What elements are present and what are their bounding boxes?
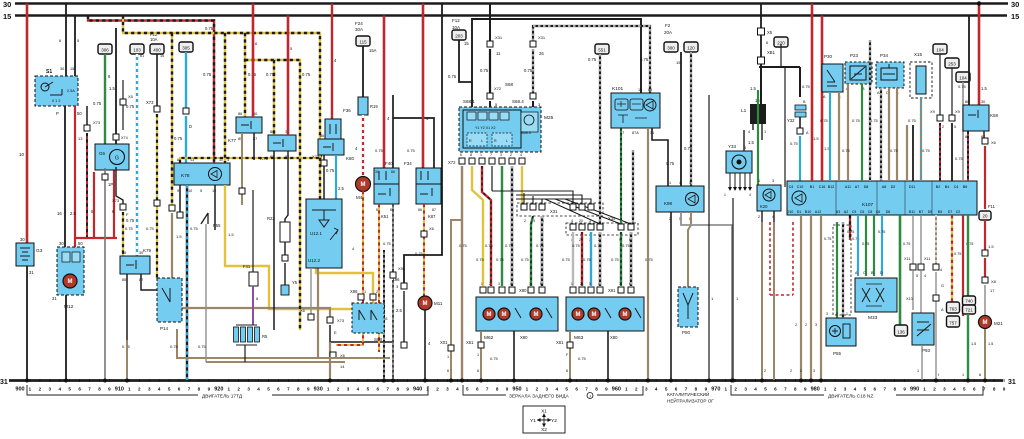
svg-text:B12: B12 (828, 185, 834, 189)
svg-text:3: 3 (589, 282, 591, 286)
svg-text:B4: B4 (945, 185, 949, 189)
svg-text:900: 900 (15, 387, 24, 393)
svg-text:R: R (494, 139, 497, 143)
svg-text:9: 9 (108, 387, 111, 392)
svg-text:0.75: 0.75 (383, 241, 392, 246)
svg-text:C8: C8 (868, 210, 873, 214)
svg-text:3: 3 (689, 181, 691, 185)
svg-text:4: 4 (571, 219, 573, 223)
svg-text:0.75: 0.75 (476, 257, 485, 262)
svg-text:10A: 10A (452, 25, 460, 30)
svg-text:0.75: 0.75 (640, 57, 649, 62)
svg-text:6: 6 (874, 387, 877, 392)
svg-text:87A: 87A (632, 131, 639, 135)
svg-text:7: 7 (529, 282, 531, 286)
svg-text:0 1 2: 0 1 2 (52, 99, 60, 103)
svg-text:9: 9 (804, 387, 807, 392)
svg-text:P23: P23 (850, 53, 859, 58)
svg-text:3: 3 (49, 387, 52, 392)
svg-text:4: 4 (854, 387, 857, 392)
svg-text:X31: X31 (495, 35, 503, 40)
svg-text:2: 2 (805, 323, 807, 327)
svg-text:1: 1 (447, 355, 449, 359)
svg-text:A8: A8 (882, 185, 886, 189)
svg-text:17: 17 (990, 288, 995, 293)
svg-text:K98: K98 (664, 201, 673, 206)
svg-text:740: 740 (965, 299, 973, 304)
svg-text:5: 5 (200, 189, 202, 193)
svg-text:B10: B10 (805, 210, 811, 214)
svg-text:J: J (589, 394, 591, 399)
svg-text:2: 2 (138, 387, 141, 392)
svg-text:0.75: 0.75 (583, 257, 592, 262)
svg-text:B7: B7 (919, 210, 923, 214)
svg-text:87: 87 (432, 208, 436, 212)
svg-text:31: 31 (1008, 379, 1016, 386)
svg-text:X13: X13 (906, 297, 913, 301)
svg-text:2: 2 (580, 282, 582, 286)
svg-text:B2: B2 (936, 185, 940, 189)
svg-text:31: 31 (52, 296, 57, 301)
svg-text:X8: X8 (991, 279, 997, 284)
svg-text:1: 1 (669, 181, 671, 185)
svg-text:G3: G3 (36, 248, 43, 254)
svg-text:X11: X11 (904, 257, 910, 261)
svg-text:U12.2: U12.2 (308, 258, 321, 263)
svg-text:757: 757 (949, 321, 957, 326)
svg-text:S1: S1 (46, 69, 52, 75)
svg-text:R: R (469, 139, 472, 143)
svg-text:6: 6 (566, 369, 568, 373)
svg-text:13: 13 (78, 136, 83, 141)
svg-text:A2: A2 (844, 210, 848, 214)
svg-text:1.5: 1.5 (109, 86, 115, 91)
svg-text:M62: M62 (484, 335, 494, 341)
svg-text:30: 30 (3, 0, 11, 9)
svg-text:K87: K87 (428, 214, 436, 219)
svg-text:X01: X01 (440, 340, 448, 345)
svg-text:13: 13 (190, 158, 194, 162)
svg-text:X9: X9 (930, 109, 936, 114)
svg-text:ЗЕРКАЛА ЗАДНЕГО ВИДА: ЗЕРКАЛА ЗАДНЕГО ВИДА (509, 394, 570, 400)
svg-text:D6: D6 (886, 210, 891, 214)
svg-text:0.75: 0.75 (496, 257, 505, 262)
svg-text:0.75: 0.75 (407, 148, 416, 153)
svg-text:61: 61 (140, 54, 144, 58)
svg-text:C16: C16 (819, 185, 826, 189)
svg-text:B11: B11 (909, 210, 915, 214)
svg-text:1: 1 (962, 373, 964, 377)
svg-text:950: 950 (512, 387, 521, 393)
svg-text:1.5: 1.5 (988, 342, 993, 346)
svg-text:P14: P14 (160, 326, 169, 331)
svg-text:4: 4 (749, 193, 751, 197)
svg-text:4: 4 (257, 387, 260, 392)
svg-text:Y1 Y2 X1 X2: Y1 Y2 X1 X2 (475, 126, 496, 130)
svg-text:5: 5 (367, 387, 370, 392)
svg-text:0.75: 0.75 (126, 104, 135, 109)
svg-text:0.75: 0.75 (862, 242, 869, 246)
svg-text:120: 120 (687, 46, 695, 51)
svg-text:F2: F2 (665, 23, 671, 28)
svg-text:8: 8 (496, 387, 499, 392)
svg-text:5: 5 (864, 387, 867, 392)
svg-text:763: 763 (949, 307, 957, 312)
svg-text:G: G (115, 156, 119, 162)
svg-text:X72: X72 (494, 86, 502, 91)
svg-text:551: 551 (598, 48, 606, 53)
svg-text:M: M (68, 279, 73, 285)
svg-text:2: 2 (758, 215, 760, 219)
svg-text:5: 5 (954, 125, 956, 129)
svg-text:86: 86 (965, 100, 969, 104)
svg-text:2.5: 2.5 (338, 186, 344, 191)
svg-text:0.75: 0.75 (93, 101, 102, 106)
svg-text:1: 1 (724, 387, 727, 392)
svg-text:1.5: 1.5 (748, 140, 754, 145)
svg-text:4: 4 (940, 268, 942, 272)
svg-text:6: 6 (178, 387, 181, 392)
svg-text:F24: F24 (355, 21, 363, 26)
svg-text:2: 2 (376, 290, 378, 294)
svg-text:0.75: 0.75 (521, 257, 530, 262)
svg-text:1: 1 (481, 282, 483, 286)
svg-text:0.75: 0.75 (459, 243, 468, 248)
svg-text:0.75: 0.75 (266, 72, 275, 77)
svg-text:721: 721 (965, 308, 973, 313)
svg-text:F11: F11 (988, 204, 996, 209)
svg-text:6: 6 (377, 387, 380, 392)
svg-text:M: M (423, 301, 428, 307)
svg-text:M: M (983, 320, 988, 326)
svg-text:0.75: 0.75 (922, 148, 931, 153)
svg-text:НЕЙТРАЛИЗАТОР ОГ: НЕЙТРАЛИЗАТОР ОГ (667, 397, 714, 404)
svg-text:3: 3 (498, 282, 500, 286)
svg-text:X34: X34 (608, 216, 616, 221)
svg-text:P34: P34 (880, 53, 889, 58)
svg-text:1.5: 1.5 (981, 86, 987, 91)
svg-text:9: 9 (1003, 387, 1006, 392)
svg-text:X2: X2 (541, 427, 547, 433)
svg-text:86: 86 (418, 208, 422, 212)
svg-text:10A: 10A (150, 37, 158, 42)
svg-text:15: 15 (638, 88, 642, 92)
svg-text:B1: B1 (810, 185, 814, 189)
svg-text:0.75: 0.75 (203, 72, 212, 77)
svg-text:0.75: 0.75 (684, 146, 693, 151)
svg-text:0.75: 0.75 (375, 148, 384, 153)
svg-text:1: 1 (571, 282, 573, 286)
svg-text:7: 7 (883, 387, 886, 392)
svg-text:2: 2 (510, 153, 512, 157)
svg-text:0.75: 0.75 (485, 243, 494, 248)
svg-text:6: 6 (774, 387, 777, 392)
svg-text:1.5: 1.5 (971, 342, 976, 346)
svg-text:1: 1 (764, 130, 766, 134)
svg-text:0.75: 0.75 (302, 72, 311, 77)
svg-text:2: 2 (764, 369, 766, 373)
svg-text:4: 4 (456, 387, 459, 392)
svg-text:X11: X11 (924, 257, 930, 261)
svg-text:0.75: 0.75 (480, 68, 489, 73)
svg-text:K58: K58 (990, 113, 999, 118)
svg-text:X80: X80 (520, 335, 528, 340)
svg-text:9: 9 (406, 387, 409, 392)
svg-text:970: 970 (711, 387, 720, 393)
svg-text:15A: 15A (369, 48, 377, 53)
svg-text:X73: X73 (112, 198, 120, 203)
svg-text:A7: A7 (855, 185, 859, 189)
svg-text:M: M (502, 312, 507, 318)
svg-text:0.75: 0.75 (536, 243, 545, 248)
svg-text:P50: P50 (682, 330, 691, 335)
svg-text:203: 203 (455, 34, 463, 39)
svg-text:8: 8 (993, 387, 996, 392)
svg-text:X31: X31 (538, 35, 546, 40)
svg-text:9: 9 (705, 387, 708, 392)
svg-text:8: 8 (98, 387, 101, 392)
svg-text:0.75: 0.75 (958, 84, 967, 89)
svg-text:14: 14 (340, 364, 345, 369)
svg-text:3: 3 (813, 369, 815, 373)
svg-text:0.75: 0.75 (645, 257, 654, 262)
svg-text:15: 15 (3, 12, 11, 21)
svg-text:4: 4 (158, 387, 161, 392)
svg-text:3: 3 (148, 387, 151, 392)
svg-text:6: 6 (629, 282, 631, 286)
svg-text:1: 1 (923, 387, 926, 392)
svg-text:3: 3 (744, 387, 747, 392)
svg-text:0.75: 0.75 (622, 243, 631, 248)
svg-text:960: 960 (612, 387, 621, 393)
svg-text:X72: X72 (448, 160, 456, 165)
svg-text:0.75: 0.75 (852, 118, 861, 123)
svg-text:8: 8 (695, 387, 698, 392)
svg-text:0.75: 0.75 (326, 168, 335, 173)
svg-text:X6: X6 (429, 226, 435, 231)
svg-text:P30: P30 (824, 54, 833, 59)
svg-text:940: 940 (413, 387, 422, 393)
svg-text:S68: S68 (505, 82, 514, 87)
svg-text:M21: M21 (994, 321, 1003, 326)
svg-text:Y33: Y33 (728, 144, 737, 149)
svg-text:31: 31 (0, 379, 8, 386)
svg-text:X6: X6 (991, 140, 997, 145)
svg-text:S88: S88 (374, 337, 383, 342)
svg-text:30: 30 (20, 237, 25, 242)
svg-text:930: 930 (314, 387, 323, 393)
svg-text:X73: X73 (146, 100, 154, 105)
svg-text:11: 11 (219, 158, 223, 162)
svg-text:A11: A11 (845, 185, 851, 189)
svg-text:X73: X73 (93, 120, 101, 125)
svg-text:7: 7 (685, 387, 688, 392)
svg-text:30: 30 (59, 241, 64, 246)
svg-text:0.75: 0.75 (190, 226, 199, 231)
svg-text:M11: M11 (434, 301, 443, 306)
svg-text:1: 1 (724, 193, 726, 197)
svg-text:4: 4 (679, 181, 681, 185)
svg-text:R22: R22 (267, 216, 275, 221)
svg-text:9: 9 (903, 387, 906, 392)
svg-text:0.75: 0.75 (870, 118, 879, 123)
svg-text:2: 2 (942, 125, 944, 129)
svg-text:4: 4 (953, 387, 956, 392)
svg-text:XB1: XB1 (767, 50, 776, 55)
svg-text:K101: K101 (612, 86, 624, 92)
svg-text:0.75: 0.75 (790, 141, 799, 146)
svg-text:4: 4 (655, 387, 658, 392)
svg-text:6: 6 (277, 387, 280, 392)
svg-text:2.5: 2.5 (70, 211, 76, 216)
svg-text:K79: K79 (143, 248, 152, 253)
svg-text:910: 910 (115, 387, 124, 393)
svg-text:7: 7 (585, 387, 588, 392)
svg-text:1: 1 (846, 312, 848, 316)
svg-text:8: 8 (893, 387, 896, 392)
svg-text:10: 10 (188, 189, 192, 193)
svg-text:M: M (361, 182, 366, 188)
svg-text:M: M (623, 312, 628, 318)
svg-text:K20: K20 (760, 204, 768, 209)
svg-text:C4: C4 (954, 185, 959, 189)
svg-text:X80: X80 (519, 288, 527, 293)
svg-text:3: 3 (247, 387, 250, 392)
svg-text:0.75: 0.75 (126, 218, 135, 223)
svg-text:9: 9 (177, 189, 179, 193)
svg-text:2: 2 (436, 387, 439, 392)
svg-text:M4: M4 (356, 195, 363, 200)
svg-text:103: 103 (133, 48, 141, 53)
svg-text:M25: M25 (544, 115, 554, 121)
svg-text:2: 2 (795, 323, 797, 327)
svg-text:30: 30 (981, 100, 985, 104)
svg-text:A12: A12 (815, 210, 821, 214)
svg-text:0.75: 0.75 (666, 161, 675, 166)
svg-text:0.75: 0.75 (878, 230, 885, 234)
svg-text:30: 30 (60, 67, 64, 71)
svg-text:0.75: 0.75 (125, 226, 134, 231)
svg-text:K107: K107 (862, 202, 874, 208)
svg-text:115: 115 (359, 40, 367, 45)
svg-text:300: 300 (667, 46, 675, 51)
svg-text:X86: X86 (350, 289, 358, 294)
svg-text:30: 30 (139, 251, 143, 255)
svg-text:1P: 1P (108, 182, 113, 187)
svg-text:C10: C10 (797, 185, 804, 189)
svg-text:0.75: 0.75 (842, 148, 851, 153)
svg-text:1: 1 (29, 387, 32, 392)
svg-text:8: 8 (470, 153, 472, 157)
svg-text:20: 20 (982, 214, 988, 219)
svg-text:3: 3 (589, 219, 591, 223)
svg-text:3: 3 (844, 387, 847, 392)
svg-text:86: 86 (391, 170, 395, 174)
svg-text:2: 2 (790, 369, 792, 373)
svg-text:8: 8 (297, 387, 300, 392)
svg-text:D7: D7 (948, 210, 953, 214)
svg-text:M: M (576, 312, 581, 318)
svg-text:6: 6 (177, 158, 179, 162)
svg-text:30: 30 (1011, 0, 1019, 9)
svg-text:0.75: 0.75 (955, 156, 964, 161)
svg-text:S68.1: S68.1 (463, 99, 475, 104)
svg-text:86: 86 (270, 130, 274, 134)
svg-text:D2: D2 (891, 185, 896, 189)
svg-text:L: L (481, 139, 483, 143)
svg-text:Y5: Y5 (292, 280, 298, 285)
svg-text:20A: 20A (664, 30, 672, 35)
svg-text:7: 7 (287, 387, 290, 392)
svg-text:2: 2 (834, 387, 837, 392)
svg-text:0.75: 0.75 (448, 74, 457, 79)
svg-text:6: 6 (476, 387, 479, 392)
svg-text:6: 6 (675, 387, 678, 392)
svg-text:50: 50 (78, 241, 83, 246)
svg-text:5: 5 (665, 387, 668, 392)
svg-text:X96: X96 (392, 277, 400, 282)
svg-text:8: 8 (396, 387, 399, 392)
svg-text:B3: B3 (836, 210, 840, 214)
svg-text:K51: K51 (381, 214, 389, 219)
svg-text:C9: C9 (852, 210, 857, 214)
svg-text:C2: C2 (956, 210, 961, 214)
svg-text:2: 2 (734, 387, 737, 392)
svg-text:C: C (863, 271, 866, 275)
svg-text:6: 6 (460, 153, 462, 157)
svg-text:305: 305 (182, 46, 190, 51)
svg-text:K77: K77 (228, 138, 237, 143)
svg-text:7: 7 (386, 387, 389, 392)
svg-text:C6: C6 (876, 210, 881, 214)
svg-text:8: 8 (198, 387, 201, 392)
svg-text:4: 4 (754, 387, 757, 392)
svg-text:0.75: 0.75 (505, 243, 514, 248)
svg-text:86: 86 (320, 134, 324, 138)
svg-text:X5: X5 (128, 94, 134, 99)
svg-text:5: 5 (168, 387, 171, 392)
svg-text:5: 5 (764, 387, 767, 392)
svg-text:3: 3 (772, 179, 774, 183)
svg-text:B5: B5 (938, 210, 942, 214)
svg-text:3: 3 (446, 387, 449, 392)
svg-text:980: 980 (811, 387, 820, 393)
svg-text:D10: D10 (787, 210, 794, 214)
svg-text:1.5: 1.5 (813, 136, 819, 141)
svg-text:30: 30 (375, 170, 379, 174)
svg-text:15: 15 (70, 67, 74, 71)
svg-text:X5: X5 (767, 30, 773, 35)
svg-text:6: 6 (575, 387, 578, 392)
svg-text:5: 5 (565, 387, 568, 392)
svg-text:C5: C5 (860, 210, 865, 214)
svg-text:9: 9 (506, 387, 509, 392)
svg-text:M: M (487, 312, 492, 318)
svg-text:0.75: 0.75 (594, 243, 603, 248)
svg-text:КАТАЛИТИЧЕСКИЙ: КАТАЛИТИЧЕСКИЙ (667, 390, 709, 397)
svg-text:4: 4 (555, 387, 558, 392)
svg-text:1.5: 1.5 (750, 86, 756, 91)
svg-text:0.75: 0.75 (847, 230, 854, 234)
svg-text:7: 7 (188, 387, 191, 392)
svg-text:K80: K80 (346, 156, 355, 161)
svg-text:1: 1 (227, 158, 229, 162)
svg-text:7: 7 (619, 282, 621, 286)
svg-text:306: 306 (101, 48, 109, 53)
svg-text:1.5: 1.5 (228, 232, 234, 237)
svg-text:15: 15 (160, 54, 164, 58)
svg-text:9: 9 (307, 387, 310, 392)
